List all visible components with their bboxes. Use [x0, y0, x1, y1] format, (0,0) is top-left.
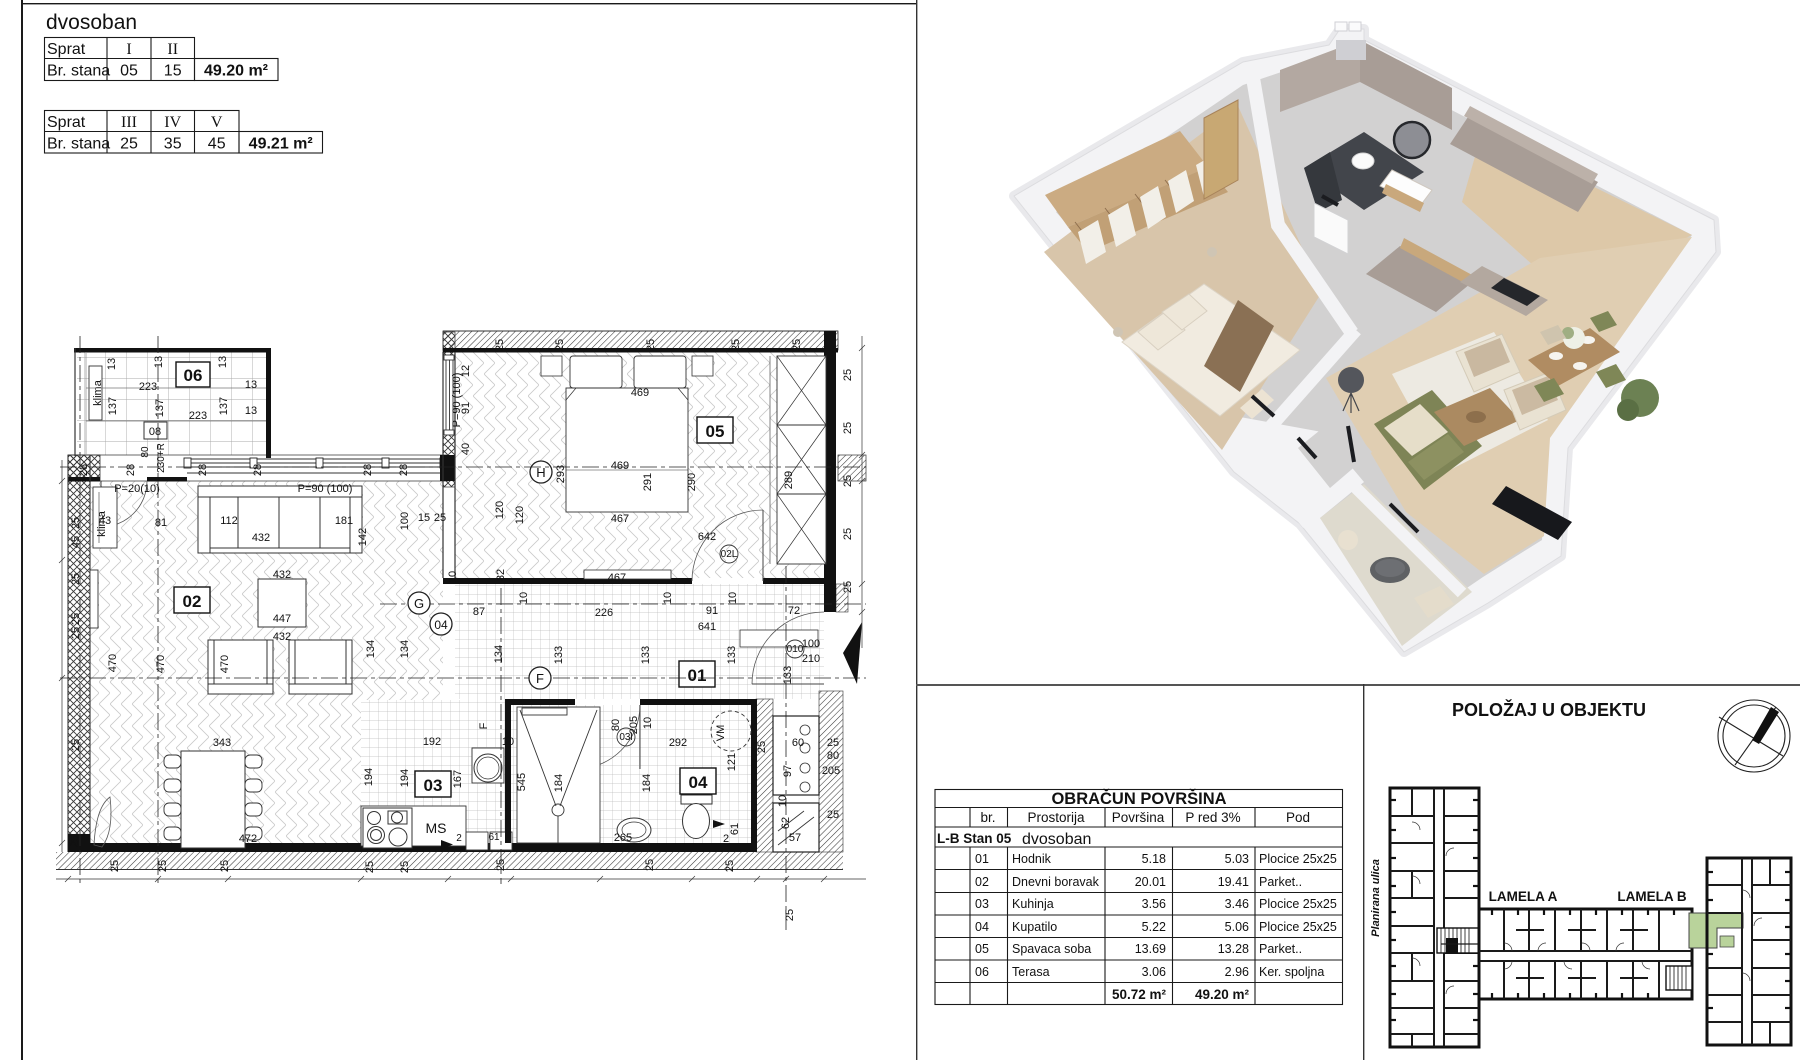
svg-text:133: 133: [782, 666, 794, 684]
svg-text:25: 25: [364, 861, 376, 873]
svg-text:87: 87: [473, 606, 485, 618]
svg-text:10: 10: [642, 717, 654, 729]
svg-text:134: 134: [365, 640, 377, 658]
svg-text:II: II: [167, 41, 178, 58]
svg-text:POLOŽAJ U OBJEKTU: POLOŽAJ U OBJEKTU: [1452, 699, 1646, 720]
svg-text:642: 642: [698, 531, 716, 543]
svg-text:134: 134: [493, 645, 505, 663]
svg-text:641: 641: [698, 621, 716, 633]
svg-text:05: 05: [120, 63, 138, 80]
svg-text:291: 291: [642, 473, 654, 491]
svg-text:25: 25: [644, 859, 656, 871]
svg-text:121: 121: [726, 753, 738, 771]
svg-text:25: 25: [827, 737, 839, 749]
svg-text:210: 210: [802, 653, 820, 665]
svg-text:184: 184: [553, 774, 565, 792]
svg-text:49.20 m²: 49.20 m²: [1195, 987, 1250, 1002]
svg-text:LAMELA B: LAMELA B: [1617, 889, 1686, 904]
svg-text:265: 265: [614, 832, 632, 844]
svg-text:120: 120: [494, 501, 506, 519]
svg-text:61: 61: [729, 823, 741, 835]
svg-text:I: I: [126, 41, 131, 58]
svg-text:91: 91: [706, 605, 718, 617]
svg-text:432: 432: [273, 631, 291, 643]
svg-text:13: 13: [153, 356, 165, 368]
svg-text:Terasa: Terasa: [1012, 965, 1050, 979]
svg-text:VM: VM: [715, 725, 727, 742]
svg-text:184: 184: [641, 774, 653, 792]
svg-text:P=90 (100): P=90 (100): [298, 483, 353, 495]
svg-text:br.: br.: [980, 810, 995, 825]
svg-text:LAMELA A: LAMELA A: [1489, 889, 1558, 904]
svg-text:25: 25: [842, 581, 854, 593]
svg-text:Površina: Površina: [1112, 810, 1165, 825]
svg-text:205: 205: [822, 765, 840, 777]
svg-text:137: 137: [107, 397, 119, 415]
svg-text:IV: IV: [164, 114, 181, 131]
svg-text:470: 470: [155, 655, 167, 673]
svg-text:03: 03: [424, 776, 443, 795]
svg-text:25: 25: [157, 860, 169, 872]
svg-text:klima: klima: [92, 379, 104, 406]
svg-text:05: 05: [975, 942, 989, 956]
svg-text:25: 25: [69, 835, 81, 847]
svg-text:120: 120: [514, 506, 526, 524]
svg-text:205: 205: [628, 716, 640, 734]
svg-text:133: 133: [726, 646, 738, 664]
svg-text:25: 25: [791, 339, 803, 351]
svg-text:545: 545: [516, 773, 528, 791]
svg-text:MS: MS: [426, 820, 447, 836]
svg-text:223: 223: [189, 410, 207, 422]
svg-text:dvosoban: dvosoban: [1022, 831, 1091, 848]
svg-text:28: 28: [362, 464, 374, 476]
svg-text:343: 343: [213, 737, 231, 749]
svg-text:25: 25: [756, 741, 768, 753]
svg-text:01: 01: [688, 666, 707, 685]
svg-text:13: 13: [106, 358, 118, 370]
svg-text:28: 28: [398, 464, 410, 476]
svg-text:472: 472: [239, 833, 257, 845]
svg-text:Parket..: Parket..: [1259, 942, 1302, 956]
svg-text:P=90 (100): P=90 (100): [451, 373, 463, 428]
svg-text:100: 100: [802, 638, 820, 650]
svg-text:25: 25: [109, 860, 121, 872]
svg-text:60: 60: [792, 737, 804, 749]
svg-text:28: 28: [197, 464, 209, 476]
svg-text:40: 40: [460, 443, 472, 455]
svg-text:L-B Stan 05: L-B Stan 05: [937, 831, 1012, 846]
svg-text:Hodnik: Hodnik: [1012, 852, 1052, 866]
svg-text:467: 467: [608, 572, 626, 584]
svg-text:02: 02: [183, 592, 202, 611]
svg-text:226: 226: [595, 607, 613, 619]
svg-text:Kuhinja: Kuhinja: [1012, 897, 1054, 911]
svg-text:OBRAČUN POVRŠINA: OBRAČUN POVRŠINA: [1051, 789, 1226, 808]
svg-text:28: 28: [252, 464, 264, 476]
svg-text:181: 181: [335, 515, 353, 527]
svg-text:223: 223: [139, 381, 157, 393]
svg-text:Sprat: Sprat: [47, 41, 86, 58]
svg-text:08: 08: [149, 426, 161, 438]
svg-text:5.18: 5.18: [1142, 852, 1166, 866]
svg-text:194: 194: [399, 769, 411, 787]
svg-text:05: 05: [706, 422, 725, 441]
svg-text:43: 43: [99, 515, 111, 527]
svg-text:P red 3%: P red 3%: [1185, 810, 1240, 825]
svg-text:25: 25: [645, 339, 657, 351]
svg-text:25: 25: [724, 860, 736, 872]
svg-text:06: 06: [184, 366, 203, 385]
svg-text:5.22: 5.22: [1142, 920, 1166, 934]
svg-text:10: 10: [518, 592, 530, 604]
svg-text:467: 467: [611, 513, 629, 525]
svg-text:100: 100: [399, 512, 411, 530]
svg-text:57: 57: [789, 832, 801, 844]
svg-text:10: 10: [727, 592, 739, 604]
svg-text:2: 2: [723, 833, 729, 845]
svg-text:81: 81: [155, 517, 167, 529]
svg-text:04: 04: [689, 773, 708, 792]
svg-text:25: 25: [842, 422, 854, 434]
svg-text:25: 25: [120, 136, 138, 153]
svg-text:Sprat: Sprat: [47, 114, 86, 131]
svg-text:Spavaca soba: Spavaca soba: [1012, 942, 1091, 956]
svg-text:72: 72: [788, 605, 800, 617]
svg-text:V: V: [211, 114, 223, 131]
svg-text:142: 142: [357, 528, 369, 546]
svg-text:13.69: 13.69: [1135, 942, 1166, 956]
svg-text:G: G: [414, 596, 424, 611]
svg-text:13: 13: [245, 405, 257, 417]
svg-text:61: 61: [488, 832, 500, 843]
svg-text:3.56: 3.56: [1142, 897, 1166, 911]
svg-text:134: 134: [399, 640, 411, 658]
svg-text:Dnevni boravak: Dnevni boravak: [1012, 875, 1100, 889]
svg-text:F: F: [536, 671, 544, 686]
svg-text:F: F: [478, 722, 490, 729]
svg-text:01: 01: [975, 852, 989, 866]
svg-text:28: 28: [125, 464, 137, 476]
svg-text:04: 04: [434, 618, 448, 632]
svg-text:13: 13: [245, 379, 257, 391]
svg-text:15: 15: [164, 63, 182, 80]
svg-text:Kupatilo: Kupatilo: [1012, 920, 1057, 934]
svg-text:470: 470: [107, 654, 119, 672]
svg-text:25: 25: [434, 512, 446, 524]
svg-text:III: III: [121, 114, 137, 131]
svg-text:15: 15: [418, 512, 430, 524]
svg-text:dvosoban: dvosoban: [46, 11, 137, 34]
svg-text:292: 292: [669, 737, 687, 749]
svg-text:25: 25: [399, 861, 411, 873]
svg-text:137: 137: [154, 399, 166, 417]
svg-text:25: 25: [554, 339, 566, 351]
svg-text:3.46: 3.46: [1225, 897, 1249, 911]
svg-text:192: 192: [423, 736, 441, 748]
svg-text:Br. stana: Br. stana: [47, 63, 110, 80]
svg-text:20.01: 20.01: [1135, 875, 1166, 889]
svg-text:25: 25: [827, 809, 839, 821]
svg-text:13.28: 13.28: [1218, 942, 1249, 956]
svg-text:293: 293: [555, 465, 567, 483]
svg-text:10: 10: [447, 571, 459, 583]
svg-text:25: 25: [494, 339, 506, 351]
svg-text:P=20(10): P=20(10): [114, 483, 160, 495]
svg-text:470: 470: [219, 655, 231, 673]
svg-text:Plocice 25x25: Plocice 25x25: [1259, 852, 1337, 866]
svg-text:010: 010: [787, 644, 804, 655]
svg-text:167: 167: [452, 770, 464, 788]
svg-text:Br. stana: Br. stana: [47, 136, 110, 153]
svg-text:432: 432: [273, 569, 291, 581]
svg-text:Prostorija: Prostorija: [1027, 810, 1085, 825]
svg-text:2.96: 2.96: [1225, 965, 1249, 979]
svg-text:133: 133: [640, 646, 652, 664]
svg-text:3.06: 3.06: [1142, 965, 1166, 979]
svg-text:35: 35: [164, 136, 182, 153]
svg-text:04: 04: [975, 920, 989, 934]
svg-text:50.72 m²: 50.72 m²: [1112, 987, 1167, 1002]
svg-text:45: 45: [208, 136, 226, 153]
svg-text:Ker. spoljna: Ker. spoljna: [1259, 965, 1324, 979]
svg-text:Plocice 25x25: Plocice 25x25: [1259, 920, 1337, 934]
svg-text:Planirana ulica: Planirana ulica: [1370, 859, 1382, 937]
svg-text:137: 137: [218, 397, 230, 415]
svg-text:Parket..: Parket..: [1259, 875, 1302, 889]
svg-text:06: 06: [975, 965, 989, 979]
svg-text:290: 290: [686, 473, 698, 491]
svg-text:32: 32: [495, 569, 507, 581]
svg-text:5.06: 5.06: [1225, 920, 1249, 934]
svg-text:80: 80: [140, 446, 151, 458]
svg-text:25: 25: [730, 339, 742, 351]
svg-text:289: 289: [783, 471, 795, 489]
svg-text:25: 25: [842, 369, 854, 381]
svg-text:02: 02: [975, 875, 989, 889]
svg-text:133: 133: [553, 646, 565, 664]
svg-text:447: 447: [273, 613, 291, 625]
svg-text:10: 10: [662, 592, 674, 604]
svg-text:49.21 m²: 49.21 m²: [249, 136, 313, 153]
svg-text:469: 469: [611, 460, 629, 472]
svg-text:80: 80: [827, 750, 839, 762]
svg-text:80: 80: [610, 719, 622, 731]
svg-text:25: 25: [842, 528, 854, 540]
svg-text:19.41: 19.41: [1218, 875, 1249, 889]
svg-text:03: 03: [975, 897, 989, 911]
svg-text:112: 112: [220, 515, 238, 527]
svg-text:97: 97: [782, 765, 794, 777]
svg-text:469: 469: [631, 387, 649, 399]
svg-text:13: 13: [217, 356, 229, 368]
svg-text:5.03: 5.03: [1225, 852, 1249, 866]
svg-text:2: 2: [456, 833, 462, 844]
svg-text:194: 194: [363, 768, 375, 786]
svg-text:25: 25: [219, 860, 231, 872]
svg-text:02L: 02L: [721, 549, 738, 560]
svg-text:49.20 m²: 49.20 m²: [204, 63, 268, 80]
svg-text:Pod: Pod: [1286, 810, 1310, 825]
svg-text:432: 432: [252, 532, 270, 544]
svg-text:10: 10: [777, 795, 789, 807]
svg-text:Plocice 25x25: Plocice 25x25: [1259, 897, 1337, 911]
